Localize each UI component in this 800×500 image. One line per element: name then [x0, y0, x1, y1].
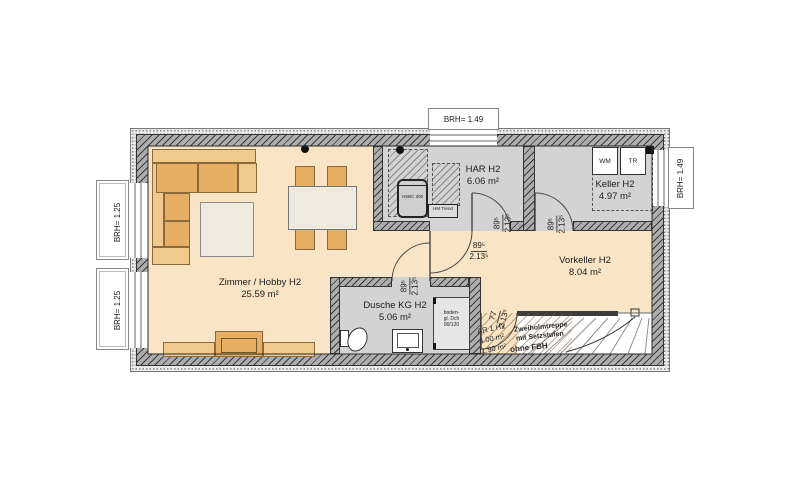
downpipe-icon [646, 146, 654, 154]
sideboard-center-doors [221, 338, 257, 353]
door-dim-zimmer-vorkeller: 89⁵ 2.13⁵ [462, 241, 496, 261]
room-name: HAR H2 [452, 164, 514, 176]
sofa-cushion [164, 193, 190, 221]
chair [327, 228, 347, 250]
wall-dusche-left [330, 277, 340, 354]
door-dim-keller: 89⁵2.13⁵ [539, 212, 573, 236]
room-name: Zimmer / Hobby H2 [195, 277, 325, 289]
shower-label: boden- gl. Dch 90/120 [434, 310, 469, 328]
shower-tray: boden- gl. Dch 90/120 [433, 297, 470, 350]
wall-har-bottom [373, 221, 430, 231]
sofa-cushion [164, 221, 190, 247]
room-name: Dusche KG H2 [352, 300, 438, 312]
chair [295, 166, 315, 188]
drain-point-icon [396, 146, 404, 154]
heating-unit: HM Trend [428, 204, 458, 218]
dryer: TR [620, 147, 646, 175]
room-area: 6.06 m² [452, 176, 514, 188]
dryer-label: TR [629, 158, 638, 165]
door-dim-har: 89⁵2.13⁵ [485, 211, 519, 235]
room-label-dusche: Dusche KG H2 5.06 m² [352, 300, 438, 324]
sofa-end-bottom [152, 247, 190, 265]
sideboard-right [263, 342, 315, 357]
sofa-cushion [198, 163, 238, 193]
door-dim-dusche: 89⁵2.13⁵ [392, 274, 426, 298]
window-label-left-lower: BRH= 1.25 [104, 275, 132, 345]
room-name: Keller H2 [588, 179, 642, 191]
heating-unit-label: HM Trend [429, 207, 457, 212]
room-area: 8.04 m² [540, 267, 630, 279]
ceiling-point-icon [301, 145, 309, 153]
window-label-right: BRH= 1.49 [668, 148, 694, 208]
room-label-keller: Keller H2 4.97 m² [588, 179, 642, 203]
room-label-zimmer: Zimmer / Hobby H2 25.59 m² [195, 277, 325, 301]
sideboard-left [163, 342, 215, 357]
room-area: 4.97 m² [588, 191, 642, 203]
window-label-left-upper: BRH= 1.25 [104, 187, 132, 257]
room-label-vorkeller: Vorkeller H2 8.04 m² [540, 255, 630, 279]
window-opening-left-lower [130, 272, 148, 348]
door-dim-ar: 772.13⁵ [480, 305, 516, 329]
wall-har-keller [523, 146, 535, 231]
storage-tank-label: HSBC 300 [399, 195, 426, 200]
washbasin [392, 329, 423, 353]
rug [200, 202, 254, 257]
window-opening-top [430, 128, 497, 146]
storage-tank: HSBC 300 [397, 179, 428, 218]
sofa-cushion [156, 163, 198, 193]
room-area: 5.06 m² [352, 312, 438, 324]
room-name: Vorkeller H2 [540, 255, 630, 267]
sofa-back-top [152, 149, 256, 163]
wall-har-left [373, 146, 383, 231]
window-opening-left-upper [130, 183, 148, 258]
floor-plan: BRH= 1.25 BRH= 1.25 BRH= 1.49 BRH= 1.49 … [0, 0, 800, 500]
wall-dusche-top-right [430, 277, 469, 287]
window-label-top: BRH= 1.49 [428, 110, 499, 128]
chair [295, 228, 315, 250]
room-label-har: HAR H2 6.06 m² [452, 164, 514, 188]
sofa-end-right [238, 163, 257, 193]
washing-machine-label: WM [599, 158, 611, 165]
dining-table [288, 186, 357, 230]
wall-keller-bottom [573, 221, 652, 231]
room-area: 25.59 m² [195, 289, 325, 301]
washing-machine: WM [592, 147, 618, 175]
chair [327, 166, 347, 188]
